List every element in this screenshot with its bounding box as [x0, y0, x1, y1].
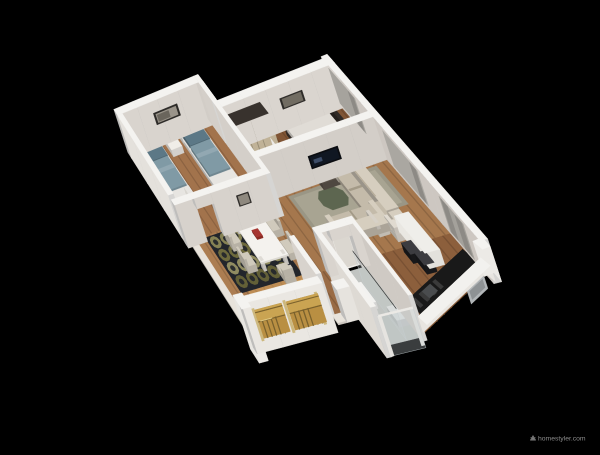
svg-text:homestyler.com: homestyler.com — [538, 436, 586, 443]
